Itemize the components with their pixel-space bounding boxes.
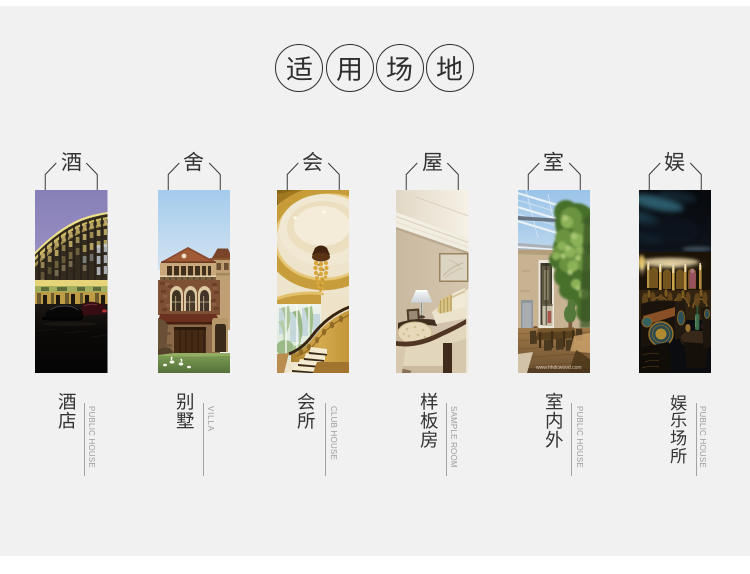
svg-text:www.hhdcwood.com: www.hhdcwood.com [536, 365, 582, 371]
